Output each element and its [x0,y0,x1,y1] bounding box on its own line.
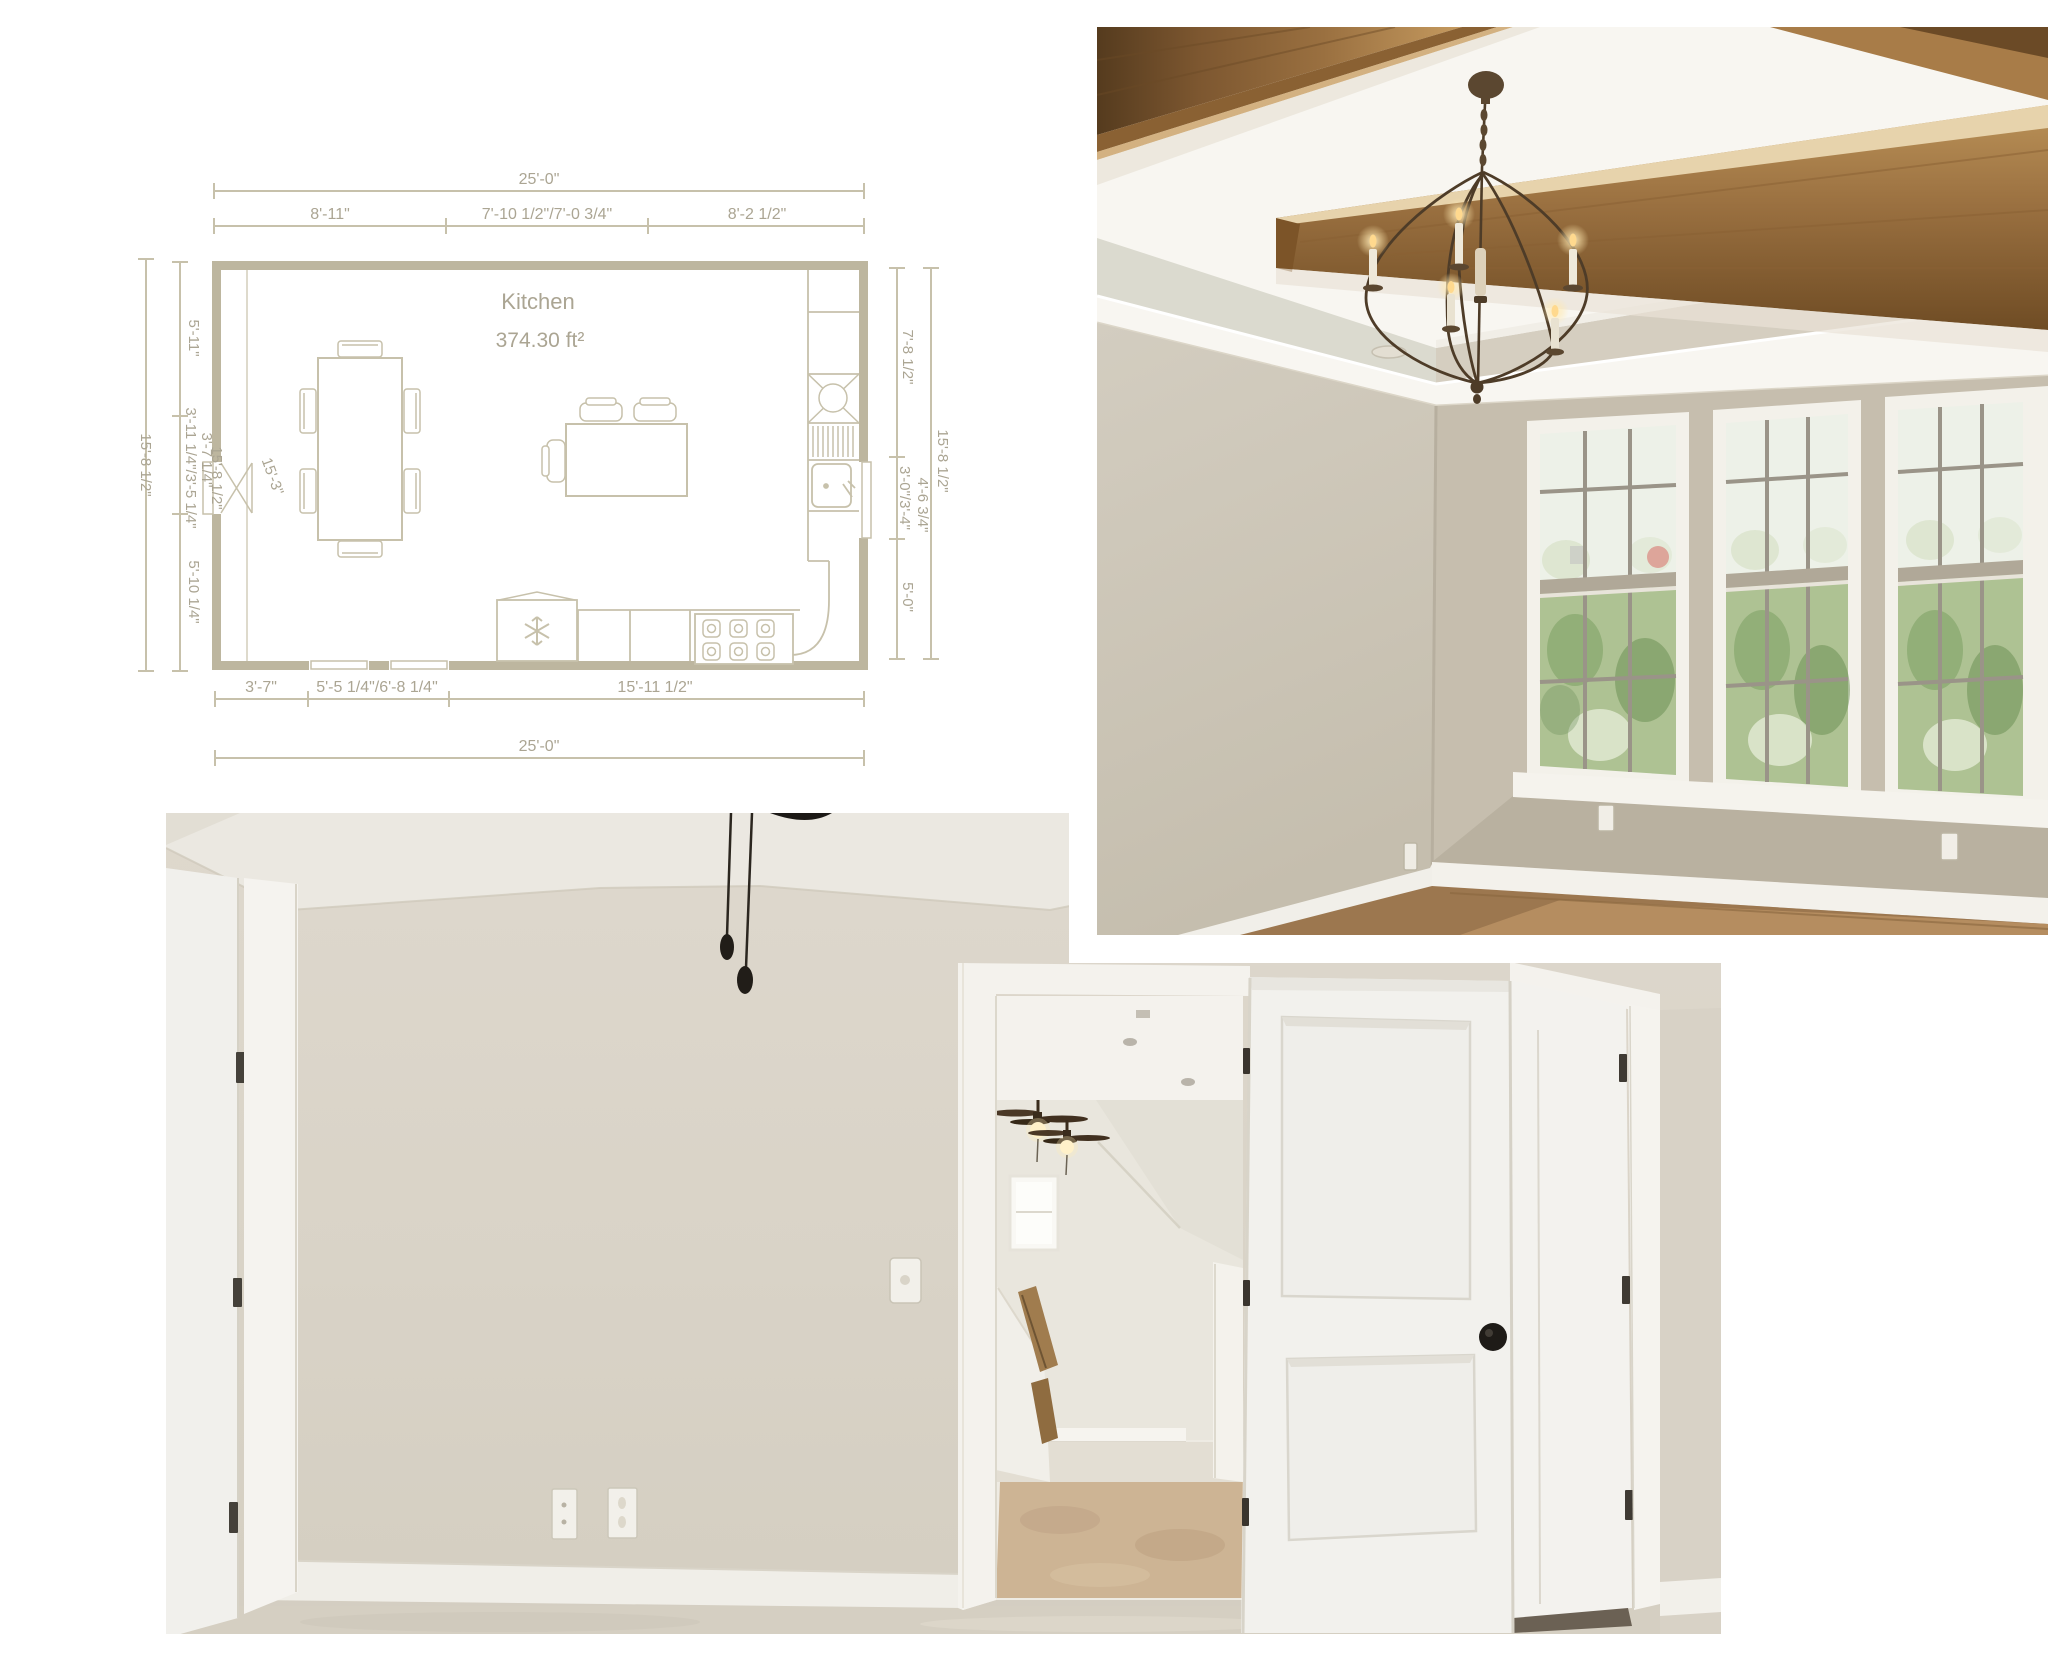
svg-text:15'-8 1/2": 15'-8 1/2" [137,433,154,496]
svg-text:4'-6 3/4": 4'-6 3/4" [914,478,931,533]
svg-text:8'-11": 8'-11" [310,206,350,223]
svg-text:15'-3": 15'-3" [258,456,287,498]
svg-text:374.30 ft²: 374.30 ft² [496,329,585,352]
svg-text:3'-11 1/4"/3'-5 1/4": 3'-11 1/4"/3'-5 1/4" [182,407,199,528]
svg-text:25'-0": 25'-0" [519,171,560,188]
svg-text:5'-10 1/4": 5'-10 1/4" [185,560,202,623]
svg-text:Kitchen: Kitchen [501,289,574,314]
svg-text:3'-0"/3'-4": 3'-0"/3'-4" [896,466,913,530]
svg-text:5'-0": 5'-0" [899,582,916,612]
svg-text:25'-0": 25'-0" [519,738,560,755]
svg-text:7'-10 1/2"/7'-0 3/4": 7'-10 1/2"/7'-0 3/4" [482,206,612,223]
svg-text:15'-8 1/2": 15'-8 1/2" [208,446,225,509]
svg-text:5'-11": 5'-11" [185,319,202,356]
svg-text:5'-5 1/4"/6'-8 1/4": 5'-5 1/4"/6'-8 1/4" [316,679,438,696]
svg-text:8'-2 1/2": 8'-2 1/2" [728,206,787,223]
svg-text:7'-8 1/2": 7'-8 1/2" [899,330,916,385]
svg-text:15'-8 1/2": 15'-8 1/2" [934,429,951,492]
svg-text:3'-7": 3'-7" [245,679,277,696]
svg-text:15'-11 1/2": 15'-11 1/2" [617,679,692,696]
